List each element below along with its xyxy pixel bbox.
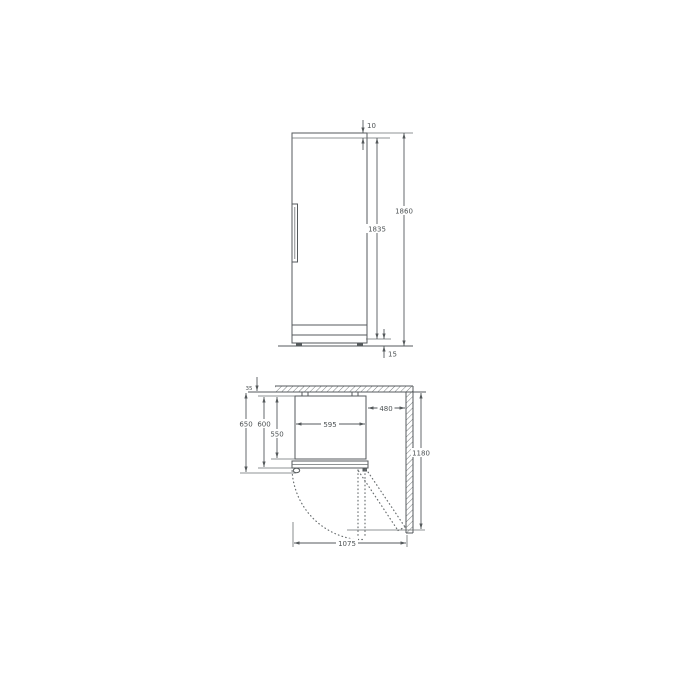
- dim-body-depth-label: 550: [270, 431, 283, 439]
- dim-open-width-label: 1075: [338, 540, 356, 548]
- wall-top-hatch: [275, 386, 413, 392]
- wall-right-hatch: [406, 392, 413, 533]
- drawing-svg: 10 1835 1860 15: [0, 0, 680, 680]
- dim-top-clearance-label: 10: [367, 122, 376, 130]
- rear-spacer-left: [302, 392, 308, 396]
- dim-total-height-label: 1860: [395, 208, 413, 216]
- door-swing-arc: [292, 467, 359, 540]
- plan-view: 35 650 600 550 595 480 1180 1075: [237, 377, 431, 548]
- front-view: 10 1835 1860 15: [278, 120, 415, 359]
- dim-door-height-label: 1835: [368, 226, 386, 234]
- installation-drawing: 10 1835 1860 15: [0, 0, 680, 680]
- dim-depth-with-door-label: 600: [257, 421, 270, 429]
- dim-side-clearance-label: 480: [379, 405, 392, 413]
- rear-spacer-right: [352, 392, 358, 396]
- dim-width-label: 595: [323, 421, 336, 429]
- door-handle-plan: [293, 468, 299, 472]
- dim-floor-clearance-label: 15: [388, 351, 397, 359]
- dim-depth-overall-label: 650: [239, 421, 252, 429]
- dim-open-depth-label: 1180: [412, 450, 430, 458]
- door-open-90: [358, 470, 365, 540]
- cabinet-outline: [292, 133, 367, 343]
- dim-rear-clearance-label: 35: [246, 386, 253, 392]
